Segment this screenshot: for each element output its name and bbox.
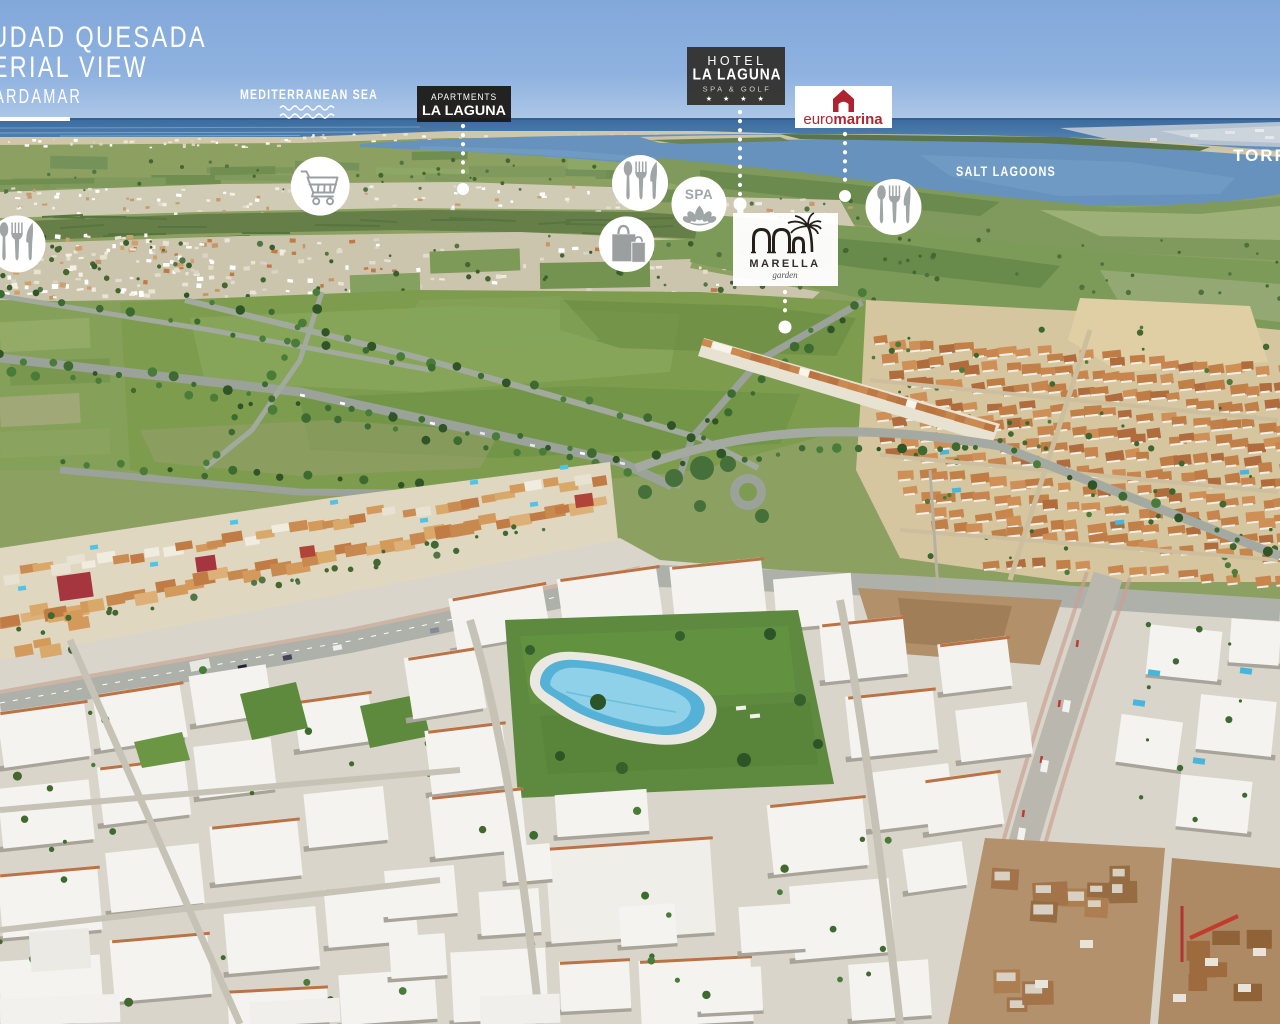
svg-text:garden: garden	[772, 270, 798, 280]
svg-text:LA LAGUNA: LA LAGUNA	[422, 102, 506, 118]
svg-text:TORREV: TORREV	[1233, 146, 1280, 165]
svg-text:LA LAGUNA: LA LAGUNA	[693, 67, 782, 84]
svg-text:CIUDAD QUESADA: CIUDAD QUESADA	[0, 21, 207, 54]
svg-text:MARELLA: MARELLA	[749, 258, 820, 270]
svg-text:GUARDAMAR: GUARDAMAR	[0, 86, 82, 108]
svg-text:SPA: SPA	[685, 187, 713, 202]
svg-text:AERIAL VIEW: AERIAL VIEW	[0, 51, 148, 84]
svg-text:SALT LAGOONS: SALT LAGOONS	[956, 163, 1056, 179]
svg-text:★ ★ ★ ★: ★ ★ ★ ★	[706, 95, 768, 103]
svg-text:SPA & GOLF: SPA & GOLF	[703, 85, 772, 94]
svg-text:MEDITERRANEAN SEA: MEDITERRANEAN SEA	[240, 87, 378, 102]
svg-text:euromarina: euromarina	[803, 111, 883, 128]
